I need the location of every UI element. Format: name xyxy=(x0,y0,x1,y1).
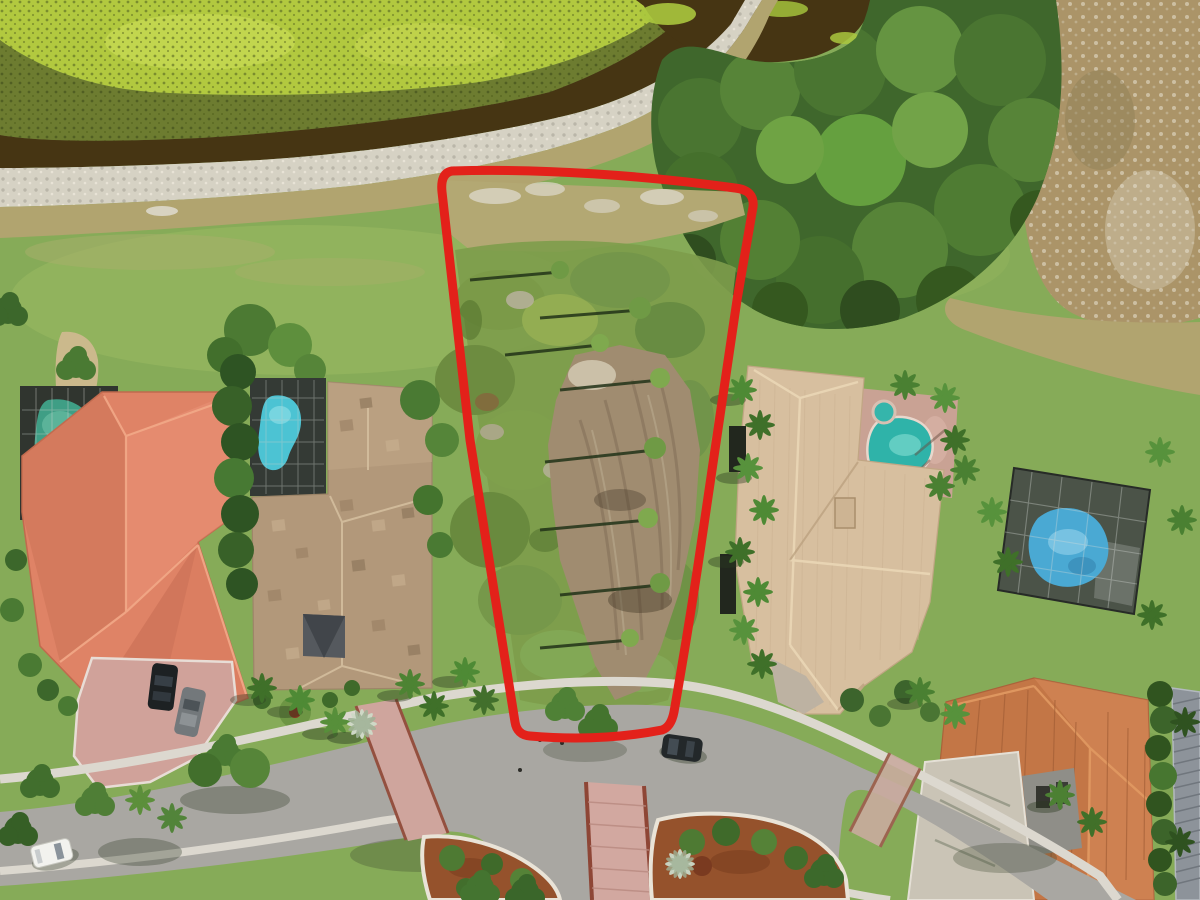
spa xyxy=(873,401,895,423)
tree-shadow-on-road xyxy=(180,786,290,814)
yard-palm xyxy=(950,455,980,485)
red-shrub xyxy=(692,856,712,876)
aerial-photo xyxy=(0,0,1200,900)
aerial-photo-canvas xyxy=(0,0,1200,900)
entrance-paver-median xyxy=(586,782,652,900)
screened-pool-right xyxy=(998,468,1150,614)
pond-algae xyxy=(640,3,696,25)
black-car xyxy=(147,663,178,712)
chimney xyxy=(835,498,855,528)
tree-shadow-on-road xyxy=(98,838,182,866)
palm-shadow-on-road xyxy=(953,843,1057,873)
dry-grass-streak xyxy=(25,234,275,270)
dry-grass-streak xyxy=(235,258,425,286)
